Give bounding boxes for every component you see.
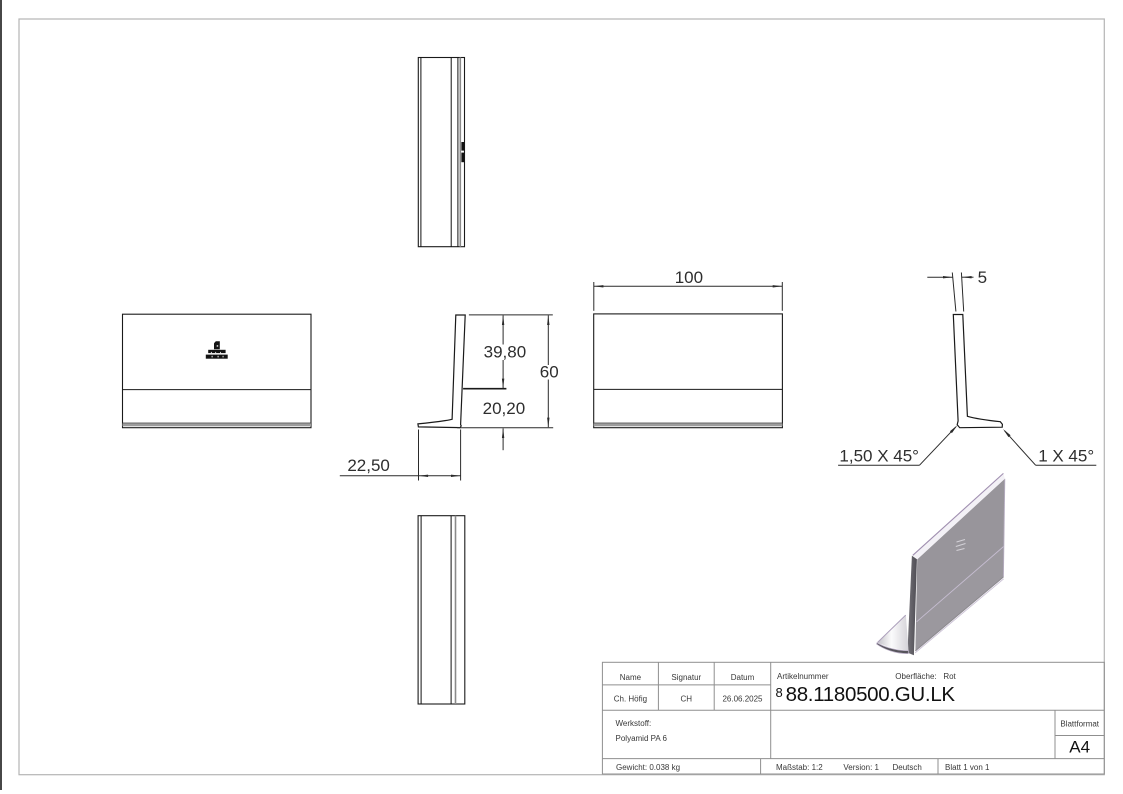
svg-text:88.1180500.GU.LK: 88.1180500.GU.LK <box>786 683 956 706</box>
svg-text:26.06.2025: 26.06.2025 <box>722 695 763 704</box>
svg-text:Artikelnummer: Artikelnummer <box>777 672 829 681</box>
svg-text:Blattformat: Blattformat <box>1060 720 1099 729</box>
svg-text:Blatt 1 von 1: Blatt 1 von 1 <box>945 763 990 772</box>
svg-text:5: 5 <box>978 268 987 287</box>
svg-text:Oberfläche: Rot: Oberfläche: Rot <box>895 672 956 681</box>
svg-text:22,50: 22,50 <box>347 456 390 475</box>
svg-text:1,50 X 45°: 1,50 X 45° <box>839 447 919 466</box>
svg-text:Werkstoff:: Werkstoff: <box>616 719 652 728</box>
svg-text:A4: A4 <box>1069 738 1090 757</box>
svg-text:1 X 45°: 1 X 45° <box>1038 447 1094 466</box>
svg-text:39,80: 39,80 <box>484 343 527 362</box>
svg-text:Deutsch: Deutsch <box>893 763 922 772</box>
svg-text:8: 8 <box>776 685 783 700</box>
svg-text:Name: Name <box>620 673 642 682</box>
svg-text:Gewicht: 0.038 kg: Gewicht: 0.038 kg <box>616 763 680 772</box>
svg-text:Datum: Datum <box>731 673 755 682</box>
svg-text:20,20: 20,20 <box>483 399 526 418</box>
svg-text:Signatur: Signatur <box>671 673 701 682</box>
svg-text:Maßstab: 1:2: Maßstab: 1:2 <box>776 763 823 772</box>
svg-text:CH: CH <box>681 695 693 704</box>
svg-text:Ch. Höfig: Ch. Höfig <box>614 695 647 704</box>
svg-text:100: 100 <box>675 268 703 287</box>
svg-text:Version: 1: Version: 1 <box>843 763 879 772</box>
svg-text:60: 60 <box>540 363 559 382</box>
svg-text:Polyamid PA 6: Polyamid PA 6 <box>616 734 668 743</box>
